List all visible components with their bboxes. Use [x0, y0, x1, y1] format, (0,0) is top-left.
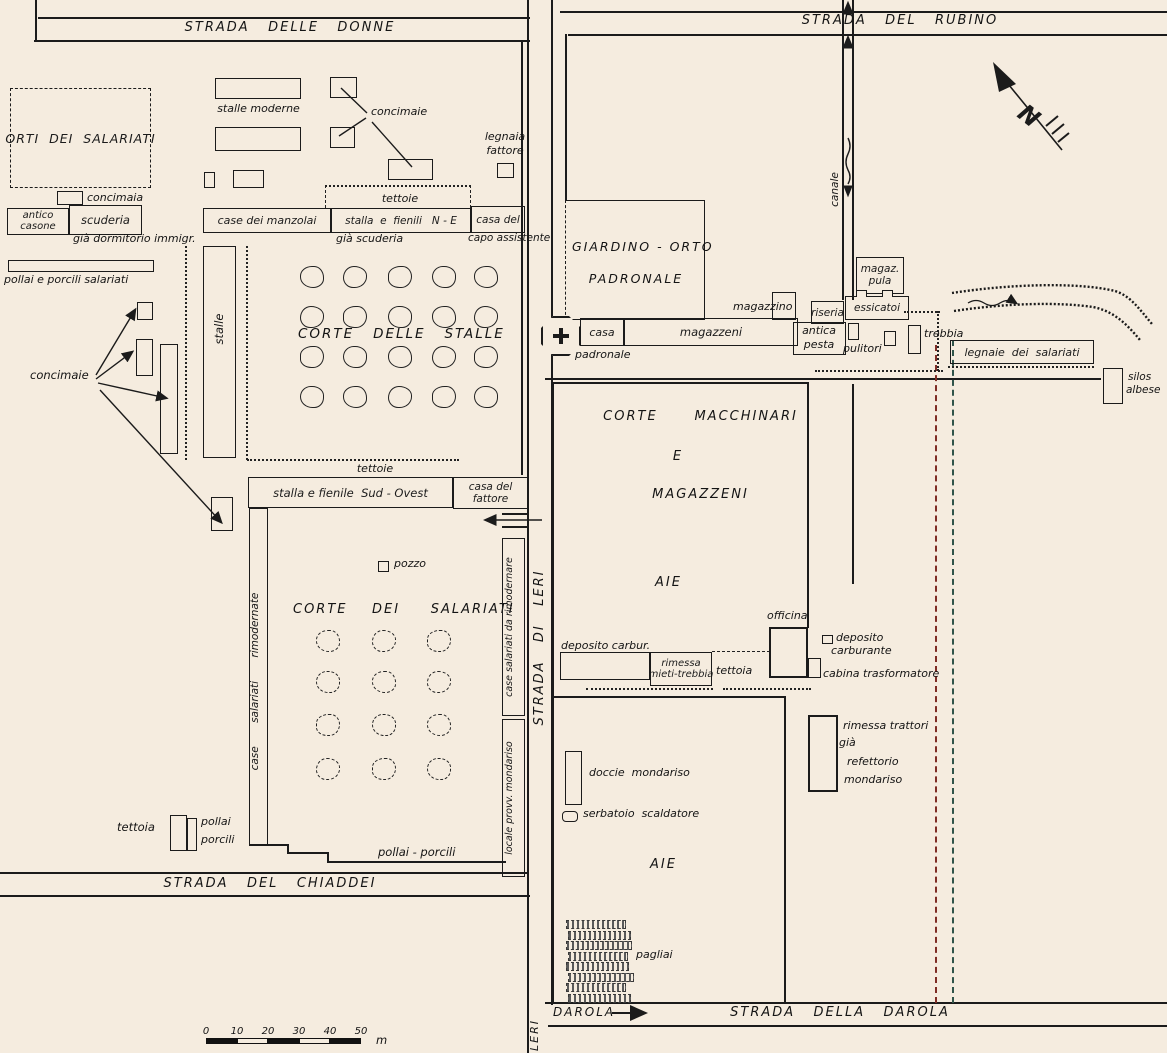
road-line: [35, 0, 37, 42]
tree: [343, 346, 367, 368]
tree: [300, 306, 324, 328]
dotted-fence: [904, 311, 940, 313]
magazzino-pula-label-line1: magaz.: [861, 264, 900, 276]
pollai-porcili-sw-building: [187, 818, 197, 851]
magazzeni-label: magazzeni: [625, 319, 797, 345]
tree: [427, 630, 451, 652]
tree: [427, 758, 451, 780]
orti-dei-salariati-area: ORTI DEI SALARIATI: [10, 88, 151, 188]
casa-del-fattore-label-line2: fattore: [473, 493, 509, 505]
pollai-porcili-south-label: pollai - porcili: [378, 846, 455, 859]
case-salariati-da-rimodernare-label: case salariati da rimodernare: [505, 542, 516, 712]
road-line: [568, 34, 1167, 36]
doccie-mondariso-label: doccie mondariso: [589, 767, 690, 779]
scale-segment: [330, 1038, 361, 1044]
dotted-fence: [723, 688, 811, 690]
rimessa-label-line1: rimessa: [661, 658, 700, 670]
tree: [316, 758, 340, 780]
concimaie-west-label: concimaie: [30, 369, 89, 382]
giardino-orto-padronale-area: [565, 200, 705, 320]
road-label-strada-di-leri: STRADA DI LERI: [533, 545, 548, 750]
trebbia-building: [908, 325, 921, 354]
road-line: [0, 895, 530, 897]
road-line: [38, 17, 530, 19]
dotted-fence: [815, 370, 943, 372]
north-arrow-icon: N: [993, 62, 1069, 150]
tree: [388, 386, 412, 408]
haystack-row: [566, 983, 626, 992]
concimaia-building: [330, 77, 357, 98]
tree: [388, 306, 412, 328]
tree: [300, 386, 324, 408]
tree: [432, 386, 456, 408]
tree: [432, 346, 456, 368]
antico-casone-building: antico casone: [7, 208, 69, 235]
pollai-sw-label: pollai: [201, 816, 231, 828]
doccie-mondariso-building: [565, 751, 582, 805]
boundary-line: [552, 382, 554, 1003]
giardino-label: PADRONALE: [572, 272, 700, 286]
road-label-strada-della-darola: STRADA DELLA DAROLA: [690, 1006, 990, 1021]
stalle-moderne-building: [215, 127, 301, 151]
casa-del-fattore-label: casa del fattore: [454, 478, 527, 508]
haystack-row: [566, 962, 629, 971]
gia-dormitorio-label: già dormitorio immigr.: [73, 233, 196, 245]
casa-del-fattore-label-line1: casa del: [469, 481, 513, 493]
scale-segment: [268, 1038, 299, 1044]
concimaia-building: [330, 127, 355, 148]
capo-assistente-label: capo assistente: [468, 233, 550, 245]
officina-building: [769, 627, 808, 678]
serbatoio-scaldatore-label: serbatoio scaldatore: [583, 808, 699, 820]
road-label-leri-direction: LERI: [529, 1011, 541, 1051]
scale-segment: [237, 1038, 268, 1044]
boundary-line: [545, 378, 1101, 380]
field-dashed-line-green: [952, 340, 954, 1003]
road-line: [545, 1002, 1167, 1004]
canal-line: [852, 0, 854, 300]
silos-albese-label: albese: [1126, 385, 1160, 397]
tree: [316, 714, 340, 736]
deposito-carburante-symbol: [822, 635, 833, 644]
legnaie-salariati-label: legnaie dei salariati: [951, 341, 1093, 363]
deposito-carburante-label: carburante: [831, 645, 892, 657]
north-letter: N: [1012, 99, 1045, 133]
road-label-strada-delle-donne: STRADA DELLE DONNE: [165, 21, 415, 36]
magazzino-pula-label: magaz. pula: [857, 258, 903, 293]
dotted-fence: [246, 246, 248, 460]
rimessa-trattori-label: refettorio: [847, 756, 899, 768]
rimessa-trattori-label: rimessa trattori: [843, 720, 928, 732]
boundary-line: [521, 42, 523, 475]
tettoie-north-label: tettoie: [340, 193, 460, 205]
tree: [474, 386, 498, 408]
pagliai-label: pagliai: [636, 949, 673, 961]
boundary-line: [552, 382, 809, 384]
canal-label: canale: [830, 157, 842, 222]
boundary-line: [565, 34, 567, 200]
passage-line: [502, 513, 528, 515]
porcili-sw-label: porcili: [201, 834, 234, 846]
road-line: [548, 1025, 1167, 1027]
concimaia-legend-symbol: [57, 191, 83, 205]
scale-tick: 10: [228, 1026, 246, 1037]
road-label-strada-del-chiaddei: STRADA DEL CHIADDEI: [130, 877, 410, 892]
antica-pesta-label: antica: [794, 325, 844, 337]
tree: [432, 266, 456, 288]
rimessa-trattori-label: già: [839, 737, 856, 749]
boundary-line: [552, 696, 785, 698]
essicatoi-notch: [882, 290, 893, 297]
concimaia-building: [137, 302, 153, 320]
road-label-strada-del-rubino: STRADA DEL RUBINO: [790, 14, 1010, 29]
tree: [300, 266, 324, 288]
dotted-fence: [937, 311, 939, 371]
essicatoi-notch: [856, 290, 867, 297]
tree: [427, 714, 451, 736]
legnaie-salariati-building: legnaie dei salariati: [950, 340, 1094, 364]
tree: [474, 266, 498, 288]
stalla-fienile-so-building: stalla e fienile Sud - Ovest: [248, 477, 453, 508]
dotted-fence: [586, 688, 713, 690]
scuderia-label: scuderia: [70, 206, 141, 234]
antico-casone-label-line1: antico: [23, 211, 54, 222]
antica-pesta-label: pesta: [794, 339, 844, 351]
scuderia-building: scuderia: [69, 205, 142, 235]
legnaia-fattore-building: [497, 163, 514, 178]
pulitori-building: [884, 331, 896, 346]
tettoie-south-shed: [247, 459, 459, 461]
canal-line: [842, 0, 844, 300]
pozzo-well: [378, 561, 389, 572]
concimaie-label: concimaie: [371, 106, 427, 118]
tree: [372, 714, 396, 736]
corte-delle-stalle-label: CORTE DELLE STALLE: [298, 327, 493, 342]
pollai-porcili-salariati-label: pollai e porcili salariati: [4, 274, 128, 286]
officina-annex-building: [808, 658, 821, 678]
rimessa-label-line2: mieti-trebbia: [649, 669, 714, 681]
deposito-carburanti-label: deposito carbur.: [561, 640, 650, 652]
locale-provv-mondariso-label: locale provv. mondariso: [505, 723, 516, 873]
stalla-fienili-ne-building: stalla e fienili N - E: [331, 208, 471, 233]
pozzo-label: pozzo: [394, 558, 426, 570]
scale-unit-label: m: [376, 1034, 387, 1047]
concimaia-building: [388, 159, 433, 180]
rimessa-trattori-building: [808, 715, 838, 792]
corte-macchinari-label: E: [663, 450, 693, 465]
dotted-fence: [185, 246, 187, 460]
magazzino-building: [772, 292, 796, 320]
legnaia-fattore-label: legnaia: [477, 131, 533, 143]
case-salariati-rimodernate-label: case salariati rimodernate: [250, 514, 262, 849]
stalle-moderne-label: stalle moderne: [211, 103, 306, 115]
antico-casone-label: antico casone: [8, 209, 68, 234]
boundary-line: [784, 696, 786, 1003]
cross-icon: [559, 328, 563, 344]
magazzeni-building: magazzeni: [624, 318, 798, 346]
riseria-building: riseria: [811, 301, 844, 324]
road-line: [0, 872, 528, 874]
silos-albese-building: [1103, 368, 1123, 404]
casa-padronale-label: casa: [581, 319, 623, 345]
magazzino-pula-label-line2: pula: [869, 276, 892, 288]
casa-capo-assistente-building: casa del: [471, 206, 525, 233]
orti-label: ORTI DEI SALARIATI: [11, 89, 150, 187]
scale-segment: [299, 1038, 330, 1044]
deposito-carburanti-building: [560, 652, 650, 680]
tree: [316, 630, 340, 652]
small-building: [233, 170, 264, 188]
pollai-porcili-salariati-building: [8, 260, 154, 272]
pulitori-building: [848, 323, 859, 340]
rimessa-mieti-trebbia-building: rimessa mieti-trebbia: [650, 652, 712, 686]
gia-scuderia-label: già scuderia: [336, 233, 403, 245]
tettoia-dashed-line: [712, 651, 770, 652]
road-label-darola-direction: DAROLA: [553, 1006, 615, 1019]
corte-macchinari-label: CORTE MACCHINARI: [583, 410, 818, 425]
corte-macchinari-label: MAGAZZENI: [628, 488, 773, 503]
cabina-trasformatore-label: cabina trasformatore: [823, 668, 939, 680]
scale-segment: [206, 1038, 237, 1044]
tree: [343, 306, 367, 328]
tree: [474, 306, 498, 328]
tree: [343, 386, 367, 408]
tettoia-east-label: tettoia: [716, 665, 752, 677]
casa-capo-assistente-label: casa del: [472, 207, 524, 232]
concimaia-legend-label: concimaia: [87, 192, 143, 204]
haystack-row: [568, 952, 628, 961]
tree: [372, 671, 396, 693]
stalle-label: stalle: [213, 254, 226, 404]
corte-dei-salariati-label: CORTE DEI SALARIATI: [293, 603, 493, 618]
scale-tick: 40: [321, 1026, 339, 1037]
essicatoi-building: essicatoi: [845, 296, 909, 320]
legnaia-fattore-label: fattore: [477, 145, 533, 157]
haystack-row: [566, 941, 632, 950]
case-dei-manzolai-label: case dei manzolai: [204, 209, 330, 232]
haystack-row: [568, 994, 631, 1003]
tettoia-sw-building: [170, 815, 187, 851]
aie-lower-label: AIE: [650, 858, 677, 873]
casa-del-fattore-building: casa del fattore: [453, 477, 528, 509]
scale-tick: 0: [198, 1026, 214, 1037]
haystack-row: [568, 973, 634, 982]
passage-line: [502, 526, 528, 528]
tree: [388, 346, 412, 368]
tree: [316, 671, 340, 693]
essicatoi-label: essicatoi: [846, 297, 908, 319]
tree: [432, 306, 456, 328]
small-building: [204, 172, 215, 188]
trebbia-label: trebbia: [924, 328, 963, 340]
case-dei-manzolai-building: case dei manzolai: [203, 208, 331, 233]
stalla-fienile-so-label: stalla e fienile Sud - Ovest: [249, 478, 452, 507]
scale-tick: 20: [259, 1026, 277, 1037]
farm-plan-map: STRADA DELLE DONNE STRADA DEL RUBINO STR…: [0, 0, 1167, 1053]
deposito-carburante-label: deposito: [836, 632, 883, 644]
stalle-moderne-building: [215, 78, 301, 99]
riseria-label: riseria: [812, 302, 843, 323]
haystack-row: [566, 920, 626, 929]
dotted-fence: [948, 366, 1094, 368]
stream: [952, 285, 1152, 340]
road-line: [34, 40, 530, 42]
tree: [372, 630, 396, 652]
concimaia-building: [160, 344, 178, 454]
stalla-fienili-ne-label: stalla e fienili N - E: [332, 209, 470, 232]
pulitori-label: pulitori: [843, 343, 882, 355]
silos-albese-label: silos: [1128, 372, 1151, 384]
tree: [372, 758, 396, 780]
scale-tick: 50: [352, 1026, 370, 1037]
boundary-line: [852, 384, 854, 584]
tettoia-sw-label: tettoia: [117, 821, 155, 834]
rimessa-mieti-trebbia-label: rimessa mieti-trebbia: [651, 653, 711, 685]
tree: [388, 266, 412, 288]
serbatoio-scaldatore-symbol: [562, 811, 578, 822]
tree: [300, 346, 324, 368]
magazzino-pula-building: magaz. pula: [856, 257, 904, 294]
aie-upper-label: AIE: [655, 576, 682, 591]
tree: [343, 266, 367, 288]
officina-label: officina: [767, 610, 808, 622]
concimaia-building: [136, 339, 153, 376]
concimaia-building: [211, 497, 233, 531]
rimessa-trattori-label: mondariso: [844, 774, 902, 786]
giardino-label: GIARDINO - ORTO: [572, 240, 700, 254]
antico-casone-label-line2: casone: [20, 222, 55, 233]
padronale-label: padronale: [575, 349, 631, 361]
tree: [474, 346, 498, 368]
scale-tick: 30: [290, 1026, 308, 1037]
casa-padronale-building: casa: [580, 318, 624, 346]
tettoie-south-label: tettoie: [330, 463, 420, 475]
tree: [427, 671, 451, 693]
haystack-row: [568, 931, 631, 940]
